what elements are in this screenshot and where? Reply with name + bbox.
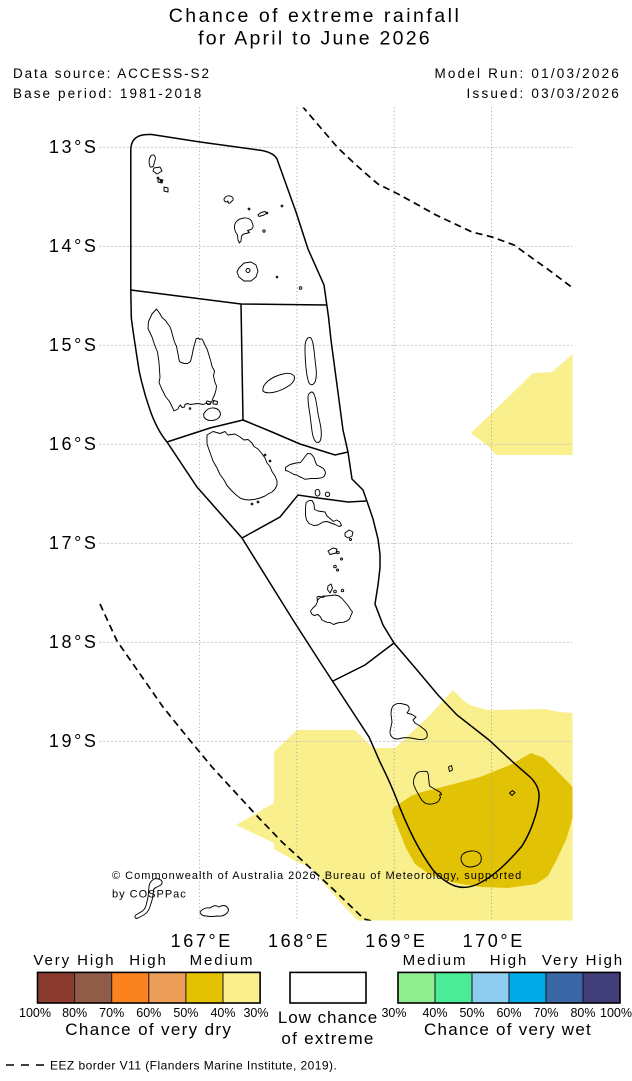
svg-text:14°S: 14°S [49, 236, 99, 256]
svg-text:169°E: 169°E [365, 931, 427, 951]
svg-text:40%: 40% [210, 1006, 235, 1020]
svg-text:for April to June 2026: for April to June 2026 [198, 28, 432, 50]
svg-text:100%: 100% [600, 1006, 632, 1020]
svg-text:50%: 50% [459, 1006, 484, 1020]
svg-text:Medium: Medium [403, 952, 468, 969]
svg-text:19°S: 19°S [49, 731, 99, 751]
svg-text:Low chance: Low chance [278, 1008, 378, 1027]
svg-text:40%: 40% [422, 1006, 447, 1020]
svg-text:Chance of very dry: Chance of very dry [65, 1020, 232, 1039]
svg-text:168°E: 168°E [268, 931, 330, 951]
svg-text:Chance of extreme rainfall: Chance of extreme rainfall [169, 5, 462, 27]
svg-text:Very High: Very High [33, 952, 115, 969]
svg-text:Issued: 03/03/2026: Issued: 03/03/2026 [467, 86, 621, 101]
svg-text:60%: 60% [496, 1006, 521, 1020]
svg-text:50%: 50% [173, 1006, 198, 1020]
svg-text:Data source: ACCESS-S2: Data source: ACCESS-S2 [13, 66, 211, 81]
svg-text:Very High: Very High [542, 952, 624, 969]
svg-text:60%: 60% [136, 1006, 161, 1020]
svg-text:17°S: 17°S [49, 533, 99, 553]
svg-text:© Commonwealth of Australia 20: © Commonwealth of Australia 2026, Bureau… [112, 870, 522, 882]
svg-text:80%: 80% [570, 1006, 595, 1020]
svg-text:170°E: 170°E [463, 931, 525, 951]
svg-text:Model Run: 01/03/2026: Model Run: 01/03/2026 [434, 66, 621, 81]
svg-text:70%: 70% [533, 1006, 558, 1020]
svg-text:of extreme: of extreme [281, 1029, 374, 1048]
svg-text:High: High [490, 952, 528, 969]
svg-text:High: High [129, 952, 167, 969]
svg-text:EEZ border V11 (Flanders Marin: EEZ border V11 (Flanders Marine Institut… [50, 1059, 337, 1073]
svg-text:Base period: 1981-2018: Base period: 1981-2018 [13, 86, 203, 101]
svg-text:30%: 30% [381, 1006, 406, 1020]
svg-text:Chance of very wet: Chance of very wet [424, 1020, 592, 1039]
svg-text:16°S: 16°S [49, 434, 99, 454]
svg-text:167°E: 167°E [171, 931, 233, 951]
svg-text:80%: 80% [62, 1006, 87, 1020]
svg-text:15°S: 15°S [49, 335, 99, 355]
svg-text:Medium: Medium [190, 952, 255, 969]
svg-text:by COSPPac: by COSPPac [112, 889, 187, 901]
svg-text:100%: 100% [19, 1006, 51, 1020]
svg-text:18°S: 18°S [49, 632, 99, 652]
svg-text:30%: 30% [243, 1006, 268, 1020]
svg-text:70%: 70% [99, 1006, 124, 1020]
svg-text:13°S: 13°S [49, 137, 99, 157]
